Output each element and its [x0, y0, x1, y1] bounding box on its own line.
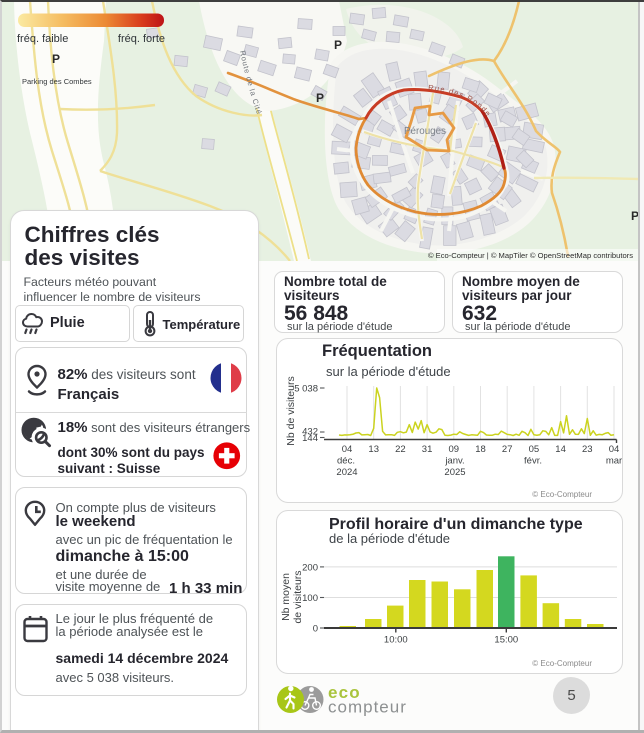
svg-text:P: P: [334, 38, 342, 52]
svg-text:janv.: janv.: [444, 456, 464, 467]
svg-text:Nb moyen: Nb moyen: [280, 573, 292, 621]
svg-text:05: 05: [529, 444, 540, 455]
svg-text:14: 14: [555, 444, 566, 455]
svg-text:compteur: compteur: [328, 698, 407, 717]
svg-text:fréq. faible: fréq. faible: [17, 33, 68, 45]
svg-text:09: 09: [449, 444, 460, 455]
svg-text:04: 04: [609, 444, 620, 455]
svg-text:27: 27: [502, 444, 513, 455]
svg-text:mar: mar: [606, 456, 622, 467]
svg-text:31: 31: [422, 444, 433, 455]
svg-text:15:00: 15:00: [494, 635, 518, 646]
svg-text:fréq. forte: fréq. forte: [118, 33, 165, 45]
svg-text:22: 22: [395, 444, 406, 455]
svg-text:© Eco-Compteur: © Eco-Compteur: [532, 659, 592, 668]
svg-text:100: 100: [302, 593, 318, 604]
svg-text:5 038: 5 038: [294, 384, 318, 395]
svg-text:18: 18: [475, 444, 486, 455]
svg-text:04: 04: [342, 444, 353, 455]
svg-text:P: P: [316, 91, 324, 105]
svg-text:© Eco-Compteur | © MapTiler ©: © Eco-Compteur | © MapTiler © OpenStreet…: [428, 251, 633, 260]
svg-text:13: 13: [368, 444, 379, 455]
svg-text:févr.: févr.: [524, 456, 542, 467]
svg-text:P: P: [631, 209, 638, 223]
svg-text:0: 0: [313, 624, 318, 635]
svg-text:P: P: [52, 52, 60, 66]
svg-text:23: 23: [582, 444, 593, 455]
svg-text:2024: 2024: [336, 467, 357, 478]
svg-text:Parking des Combes: Parking des Combes: [22, 77, 92, 86]
svg-text:200: 200: [302, 562, 318, 573]
svg-text:2025: 2025: [444, 467, 465, 478]
svg-text:Pérouges: Pérouges: [404, 126, 446, 137]
svg-text:déc.: déc.: [337, 456, 355, 467]
svg-text:144: 144: [302, 433, 318, 444]
svg-text:© Eco-Compteur: © Eco-Compteur: [532, 490, 592, 499]
svg-text:10:00: 10:00: [384, 635, 408, 646]
